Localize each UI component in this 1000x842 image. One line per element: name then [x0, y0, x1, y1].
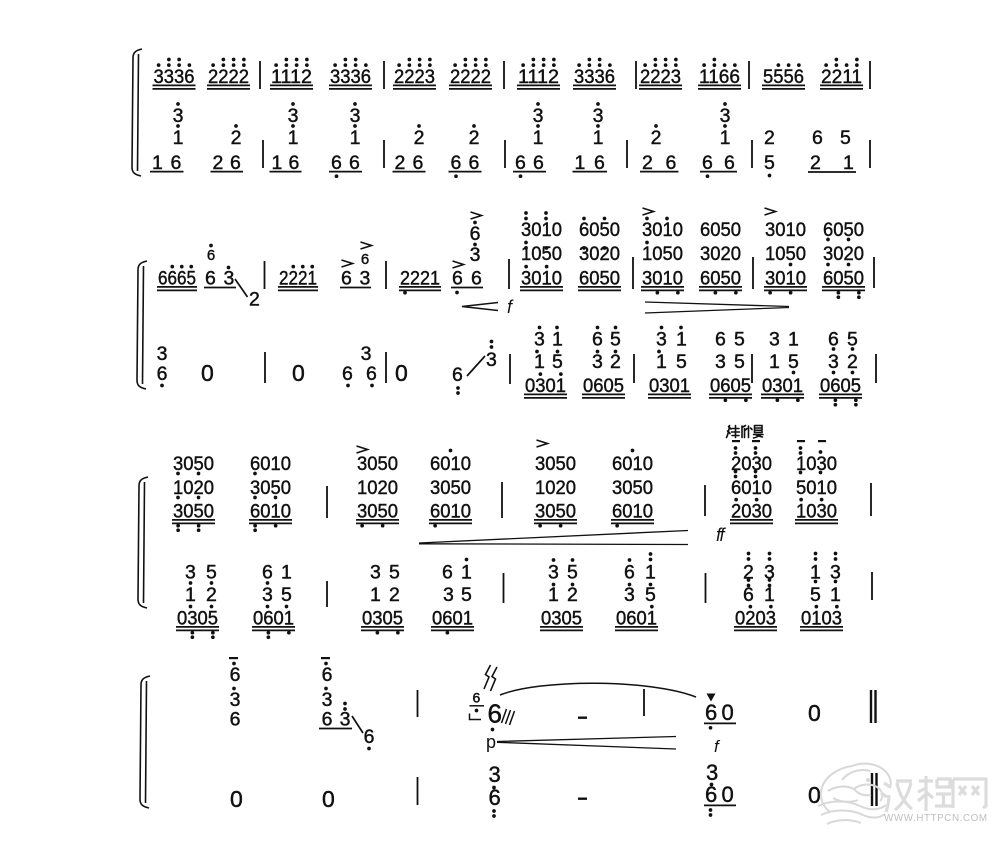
svg-text:2: 2 [231, 127, 242, 149]
svg-text:1050: 1050 [642, 243, 683, 265]
svg-text:1050: 1050 [521, 243, 562, 265]
svg-text:5: 5 [676, 351, 687, 373]
svg-text:6: 6 [715, 329, 726, 351]
svg-text:3: 3 [173, 105, 184, 127]
svg-text:6: 6 [705, 782, 717, 807]
svg-text:6: 6 [205, 268, 216, 290]
svg-text:3: 3 [470, 244, 481, 266]
svg-text:3: 3 [592, 351, 603, 373]
svg-text:6: 6 [361, 251, 369, 268]
svg-text:6: 6 [364, 726, 375, 748]
svg-text:5: 5 [840, 127, 851, 149]
svg-text:6: 6 [471, 268, 482, 290]
svg-text:1020: 1020 [173, 477, 214, 499]
svg-text:1: 1 [533, 127, 544, 149]
svg-text:0: 0 [292, 360, 305, 386]
svg-text:6010: 6010 [612, 453, 653, 475]
svg-text:6: 6 [452, 364, 463, 386]
svg-text:6010: 6010 [250, 453, 291, 475]
svg-text:5: 5 [764, 152, 775, 174]
svg-text:3020: 3020 [700, 243, 741, 265]
svg-text:6: 6 [469, 152, 480, 174]
svg-text:2: 2 [395, 152, 406, 174]
svg-text:2: 2 [642, 152, 653, 174]
svg-text:6: 6 [262, 562, 273, 584]
svg-text:1: 1 [575, 152, 586, 174]
svg-text:3050: 3050 [430, 477, 471, 499]
svg-text:1: 1 [281, 562, 292, 584]
svg-text:1: 1 [173, 127, 184, 149]
svg-text:6: 6 [289, 152, 300, 174]
svg-text:3050: 3050 [535, 453, 576, 475]
svg-text:3050: 3050 [173, 453, 214, 475]
svg-text:3: 3 [185, 562, 196, 584]
svg-text:3050: 3050 [357, 453, 398, 475]
svg-text:3: 3 [828, 351, 839, 373]
svg-text:3: 3 [157, 343, 168, 365]
svg-text:2: 2 [610, 351, 621, 373]
svg-text:5: 5 [788, 351, 799, 373]
svg-text:3: 3 [720, 105, 731, 127]
svg-text:3: 3 [489, 762, 501, 787]
svg-text:p: p [486, 732, 496, 752]
svg-text:1: 1 [272, 152, 283, 174]
svg-text:6: 6 [452, 268, 463, 290]
svg-text:2: 2 [389, 584, 400, 606]
svg-text:6050: 6050 [823, 219, 864, 241]
svg-text:3: 3 [534, 329, 545, 351]
svg-text:2: 2 [567, 584, 578, 606]
svg-text:3: 3 [656, 329, 667, 351]
svg-text:6050: 6050 [579, 219, 620, 241]
svg-text:6: 6 [171, 152, 182, 174]
svg-text:5010: 5010 [796, 477, 837, 499]
svg-text:3010: 3010 [765, 219, 806, 241]
svg-text:6010: 6010 [430, 453, 471, 475]
svg-text:0: 0 [230, 786, 243, 812]
svg-text:2: 2 [213, 152, 224, 174]
svg-text:2: 2 [847, 351, 858, 373]
svg-text:3: 3 [370, 562, 381, 584]
svg-text:6: 6 [666, 152, 677, 174]
svg-text:3: 3 [350, 105, 361, 127]
svg-text:6: 6 [515, 152, 526, 174]
svg-text:1: 1 [461, 562, 472, 584]
svg-text:6: 6 [812, 127, 823, 149]
svg-text:1: 1 [548, 584, 559, 606]
svg-text:6010: 6010 [731, 477, 772, 499]
svg-text:5: 5 [389, 562, 400, 584]
svg-text:1: 1 [769, 351, 780, 373]
svg-text:5: 5 [734, 329, 745, 351]
svg-text:2: 2 [249, 289, 260, 311]
svg-text:1: 1 [656, 351, 667, 373]
svg-text:6: 6 [230, 152, 241, 174]
svg-text:3: 3 [340, 709, 351, 731]
svg-text:6: 6 [157, 363, 168, 385]
svg-text:1020: 1020 [357, 477, 398, 499]
svg-text:1: 1 [370, 584, 381, 606]
svg-text:1: 1 [720, 127, 731, 149]
svg-text:6: 6 [702, 152, 713, 174]
svg-text:6: 6 [594, 152, 605, 174]
svg-text:3: 3 [288, 105, 299, 127]
svg-text:3050: 3050 [250, 477, 291, 499]
svg-text:3: 3 [361, 343, 372, 365]
svg-text:1030: 1030 [796, 453, 837, 475]
svg-text:0: 0 [722, 700, 734, 725]
svg-text:5: 5 [810, 584, 821, 606]
svg-text:3: 3 [769, 329, 780, 351]
svg-text:3: 3 [715, 351, 726, 373]
svg-text:6: 6 [724, 152, 735, 174]
svg-text:5: 5 [610, 329, 621, 351]
svg-text:1: 1 [645, 562, 656, 584]
svg-text:6: 6 [207, 247, 215, 264]
svg-text:6050: 6050 [700, 219, 741, 241]
svg-text:1: 1 [185, 584, 196, 606]
svg-text:3010: 3010 [642, 219, 683, 241]
svg-text:3050: 3050 [612, 477, 653, 499]
svg-text:3: 3 [624, 584, 635, 606]
svg-text:6: 6 [624, 562, 635, 584]
svg-text:6: 6 [533, 152, 544, 174]
svg-text:3: 3 [548, 562, 559, 584]
svg-text:6: 6 [470, 223, 481, 245]
svg-text:3020: 3020 [579, 243, 620, 265]
svg-text:6: 6 [349, 152, 360, 174]
svg-text:1: 1 [534, 351, 545, 373]
svg-text:1: 1 [676, 329, 687, 351]
svg-text:1: 1 [350, 127, 361, 149]
svg-text:6: 6 [451, 152, 462, 174]
svg-text:6: 6 [230, 664, 241, 686]
svg-text:3: 3 [486, 349, 497, 371]
svg-text:3: 3 [360, 268, 371, 290]
svg-text:3020: 3020 [823, 243, 864, 265]
svg-text:0: 0 [201, 360, 214, 386]
svg-text:6: 6 [322, 709, 333, 731]
svg-text:0: 0 [808, 782, 821, 808]
svg-text:5: 5 [281, 584, 292, 606]
svg-text:6: 6 [366, 363, 377, 385]
svg-text:3: 3 [443, 584, 454, 606]
svg-text:1: 1 [288, 127, 299, 149]
svg-text:6: 6 [473, 690, 481, 706]
svg-text:6: 6 [705, 700, 717, 725]
svg-text:1: 1 [788, 329, 799, 351]
svg-text:3: 3 [262, 584, 273, 606]
svg-text:0: 0 [395, 360, 408, 386]
svg-text:3010: 3010 [521, 219, 562, 241]
svg-text:0: 0 [322, 786, 335, 812]
svg-text:5: 5 [461, 584, 472, 606]
svg-text:1: 1 [843, 152, 854, 174]
svg-text:1050: 1050 [765, 243, 806, 265]
svg-text:1: 1 [593, 127, 604, 149]
svg-text:6: 6 [488, 699, 502, 729]
svg-text:6: 6 [489, 785, 501, 810]
svg-text:6: 6 [413, 152, 424, 174]
svg-text:2: 2 [651, 127, 662, 149]
svg-text:6: 6 [342, 363, 353, 385]
svg-text:6: 6 [592, 329, 603, 351]
svg-text:2: 2 [810, 152, 821, 174]
svg-text:2: 2 [764, 127, 775, 149]
svg-text:3: 3 [224, 268, 235, 290]
svg-text:6: 6 [341, 268, 352, 290]
svg-text:WWW.HTTPCN.COM: WWW.HTTPCN.COM [884, 813, 988, 824]
svg-text:3: 3 [593, 105, 604, 127]
svg-text:2: 2 [206, 584, 217, 606]
svg-text:3: 3 [533, 105, 544, 127]
svg-text:6: 6 [331, 152, 342, 174]
svg-text:6: 6 [442, 562, 453, 584]
svg-text:1020: 1020 [535, 477, 576, 499]
svg-text:1: 1 [830, 584, 841, 606]
svg-text:6: 6 [230, 709, 241, 731]
svg-text:0: 0 [722, 782, 734, 807]
svg-text:5: 5 [206, 562, 217, 584]
svg-text:2: 2 [469, 127, 480, 149]
svg-text:5: 5 [734, 351, 745, 373]
svg-text:6: 6 [322, 664, 333, 686]
svg-text:5: 5 [567, 562, 578, 584]
svg-text:0: 0 [808, 700, 821, 726]
svg-text:1: 1 [552, 329, 563, 351]
svg-text:1: 1 [152, 152, 163, 174]
svg-text:2: 2 [414, 127, 425, 149]
svg-text:5: 5 [552, 351, 563, 373]
svg-text:5: 5 [645, 584, 656, 606]
